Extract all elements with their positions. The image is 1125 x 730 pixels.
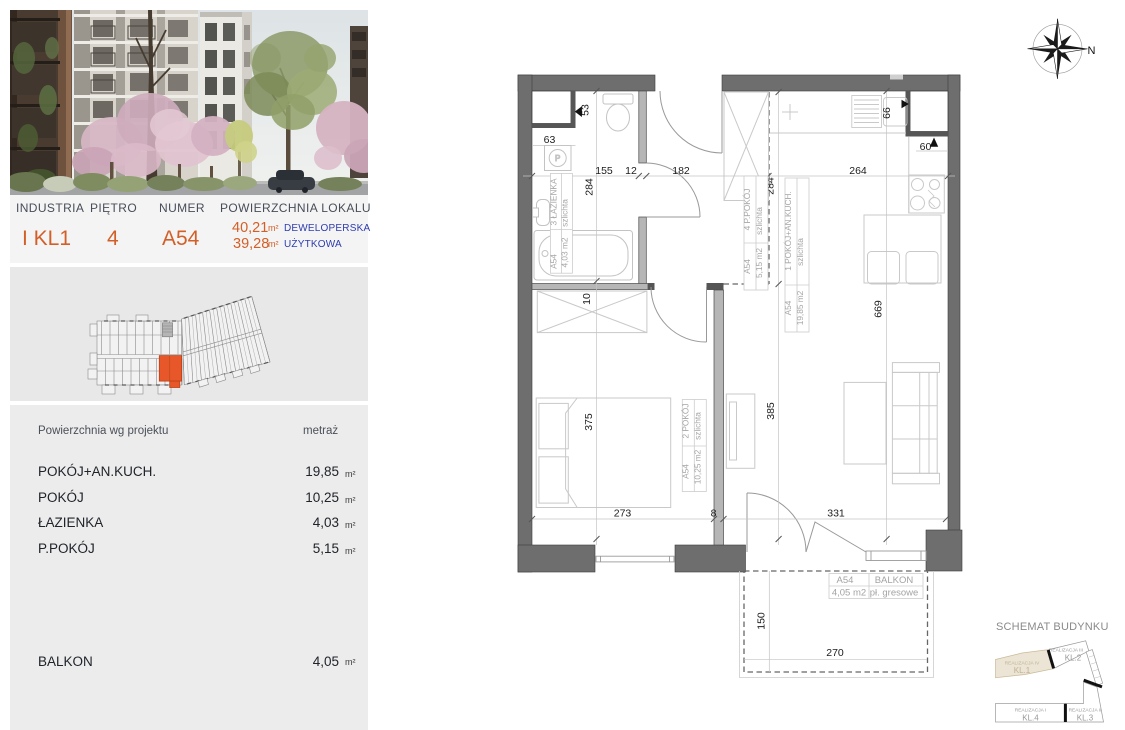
svg-text:4,05 m2: 4,05 m2 bbox=[832, 588, 866, 599]
svg-text:264: 264 bbox=[849, 165, 867, 177]
svg-text:KL.1: KL.1 bbox=[1014, 666, 1031, 675]
svg-text:66: 66 bbox=[881, 107, 893, 119]
svg-text:150: 150 bbox=[756, 612, 768, 630]
svg-text:4,03 m2: 4,03 m2 bbox=[560, 237, 570, 267]
svg-text:szlichta: szlichta bbox=[692, 412, 702, 440]
svg-text:1 POKÓJ+AN.KUCH.: 1 POKÓJ+AN.KUCH. bbox=[783, 191, 793, 271]
svg-text:8: 8 bbox=[711, 508, 717, 520]
svg-text:A54: A54 bbox=[837, 575, 854, 586]
svg-text:2 POKÓJ: 2 POKÓJ bbox=[680, 403, 690, 438]
svg-text:SCHEMAT BUDYNKU: SCHEMAT BUDYNKU bbox=[996, 621, 1109, 633]
svg-text:669: 669 bbox=[873, 300, 885, 318]
svg-text:182: 182 bbox=[672, 165, 690, 177]
svg-text:273: 273 bbox=[614, 508, 632, 520]
svg-text:5,15 m2: 5,15 m2 bbox=[754, 248, 764, 278]
svg-text:szlichta: szlichta bbox=[560, 199, 570, 227]
svg-text:szlichta: szlichta bbox=[754, 207, 764, 235]
svg-text:A54: A54 bbox=[742, 259, 752, 274]
svg-text:19,85 m2: 19,85 m2 bbox=[795, 290, 805, 325]
svg-text:A54: A54 bbox=[680, 464, 690, 479]
svg-text:KL.2: KL.2 bbox=[1065, 654, 1082, 663]
svg-text:10,25 m2: 10,25 m2 bbox=[692, 449, 702, 484]
svg-text:12: 12 bbox=[625, 165, 637, 177]
svg-text:A54: A54 bbox=[783, 300, 793, 315]
svg-text:szlichta: szlichta bbox=[795, 238, 805, 266]
svg-text:KL.4: KL.4 bbox=[1022, 714, 1039, 723]
svg-text:63: 63 bbox=[544, 134, 556, 146]
svg-text:155: 155 bbox=[595, 165, 613, 177]
svg-text:P: P bbox=[555, 154, 560, 163]
svg-text:BALKON: BALKON bbox=[875, 575, 914, 586]
svg-text:KL.3: KL.3 bbox=[1077, 714, 1094, 723]
svg-text:A54: A54 bbox=[549, 254, 559, 269]
svg-text:pł. gresowe: pł. gresowe bbox=[870, 588, 919, 599]
svg-text:284: 284 bbox=[584, 178, 596, 196]
svg-text:4 P.POKÓJ: 4 P.POKÓJ bbox=[742, 189, 752, 231]
svg-text:60: 60 bbox=[920, 141, 932, 153]
svg-text:10: 10 bbox=[581, 293, 593, 305]
svg-text:270: 270 bbox=[826, 647, 844, 659]
svg-text:331: 331 bbox=[827, 508, 845, 520]
svg-text:375: 375 bbox=[583, 413, 595, 431]
svg-text:3 ŁAZIENKA: 3 ŁAZIENKA bbox=[549, 178, 559, 226]
svg-text:N: N bbox=[1088, 45, 1096, 57]
svg-text:385: 385 bbox=[765, 402, 777, 420]
